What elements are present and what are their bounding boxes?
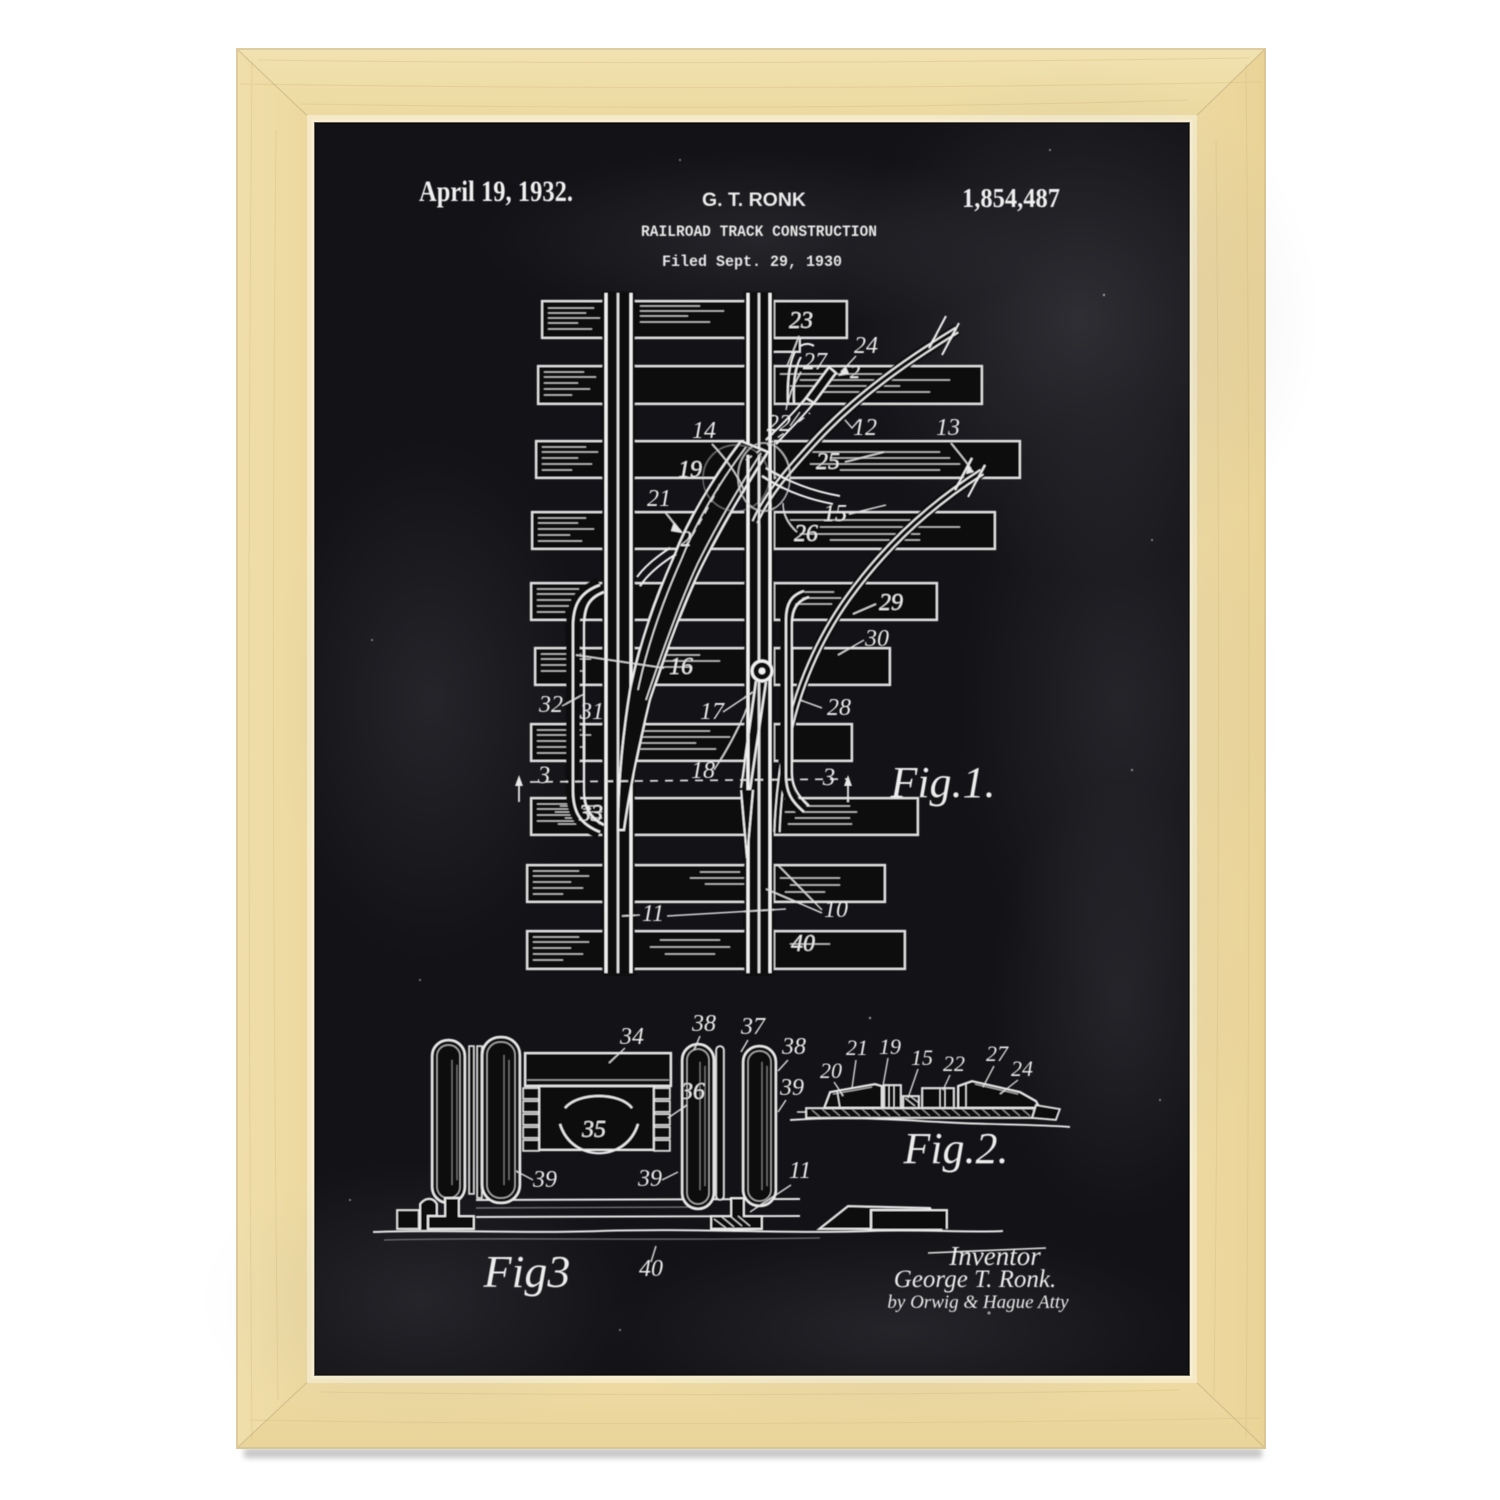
svg-text:23: 23 (789, 308, 813, 334)
svg-text:22: 22 (767, 411, 791, 437)
svg-text:RAILROAD TRACK CONSTRUCTION: RAILROAD TRACK CONSTRUCTION (641, 223, 877, 241)
svg-text:Fig.1.: Fig.1. (889, 758, 995, 807)
svg-text:12: 12 (853, 415, 877, 441)
svg-text:25: 25 (816, 449, 840, 475)
svg-text:39: 39 (779, 1075, 804, 1101)
svg-text:24: 24 (1011, 1056, 1033, 1081)
svg-text:by Orwig & Hague Atty: by Orwig & Hague Atty (887, 1292, 1069, 1313)
svg-text:17: 17 (700, 699, 725, 725)
svg-text:20: 20 (820, 1058, 842, 1083)
svg-text:18: 18 (691, 758, 715, 784)
svg-text:21: 21 (846, 1035, 868, 1060)
svg-text:37: 37 (740, 1014, 766, 1040)
svg-text:3: 3 (822, 764, 836, 791)
svg-text:38: 38 (781, 1034, 806, 1060)
svg-text:39: 39 (532, 1167, 557, 1193)
svg-text:19: 19 (678, 457, 702, 483)
svg-text:31: 31 (579, 699, 604, 725)
svg-text:Filed Sept. 29, 1930: Filed Sept. 29, 1930 (662, 253, 842, 271)
svg-text:35: 35 (581, 1117, 606, 1143)
svg-text:34: 34 (619, 1024, 644, 1050)
svg-text:14: 14 (692, 418, 716, 444)
svg-text:32: 32 (538, 692, 563, 718)
svg-text:3: 3 (537, 762, 551, 789)
svg-text:33: 33 (578, 801, 603, 827)
svg-text:1,854,487: 1,854,487 (962, 183, 1060, 213)
svg-text:Fig.2.: Fig.2. (902, 1124, 1008, 1173)
svg-text:40: 40 (791, 931, 815, 957)
svg-text:2: 2 (681, 526, 692, 551)
svg-text:April 19, 1932.: April 19, 1932. (419, 175, 573, 208)
svg-text:39: 39 (637, 1166, 662, 1192)
svg-text:36: 36 (680, 1079, 705, 1105)
svg-text:10: 10 (824, 897, 848, 923)
svg-text:G. T. RONK: G. T. RONK (702, 190, 806, 211)
svg-text:13: 13 (936, 415, 960, 441)
svg-text:Fig3: Fig3 (483, 1246, 571, 1297)
svg-text:27: 27 (986, 1041, 1009, 1066)
svg-text:2: 2 (850, 361, 860, 383)
svg-text:15: 15 (911, 1045, 933, 1070)
svg-text:24: 24 (854, 333, 878, 359)
svg-text:11: 11 (642, 901, 664, 927)
svg-text:30: 30 (864, 626, 889, 652)
svg-text:26: 26 (794, 521, 818, 547)
svg-text:16: 16 (669, 654, 693, 680)
svg-text:29: 29 (879, 590, 903, 616)
svg-text:28: 28 (827, 695, 851, 721)
svg-text:21: 21 (647, 486, 671, 512)
svg-text:15: 15 (823, 501, 847, 527)
svg-text:22: 22 (943, 1051, 965, 1076)
svg-text:27: 27 (803, 349, 828, 375)
svg-text:19: 19 (879, 1034, 901, 1059)
svg-text:38: 38 (691, 1011, 716, 1037)
svg-text:George T. Ronk.: George T. Ronk. (894, 1266, 1056, 1293)
svg-text:11: 11 (789, 1158, 811, 1184)
